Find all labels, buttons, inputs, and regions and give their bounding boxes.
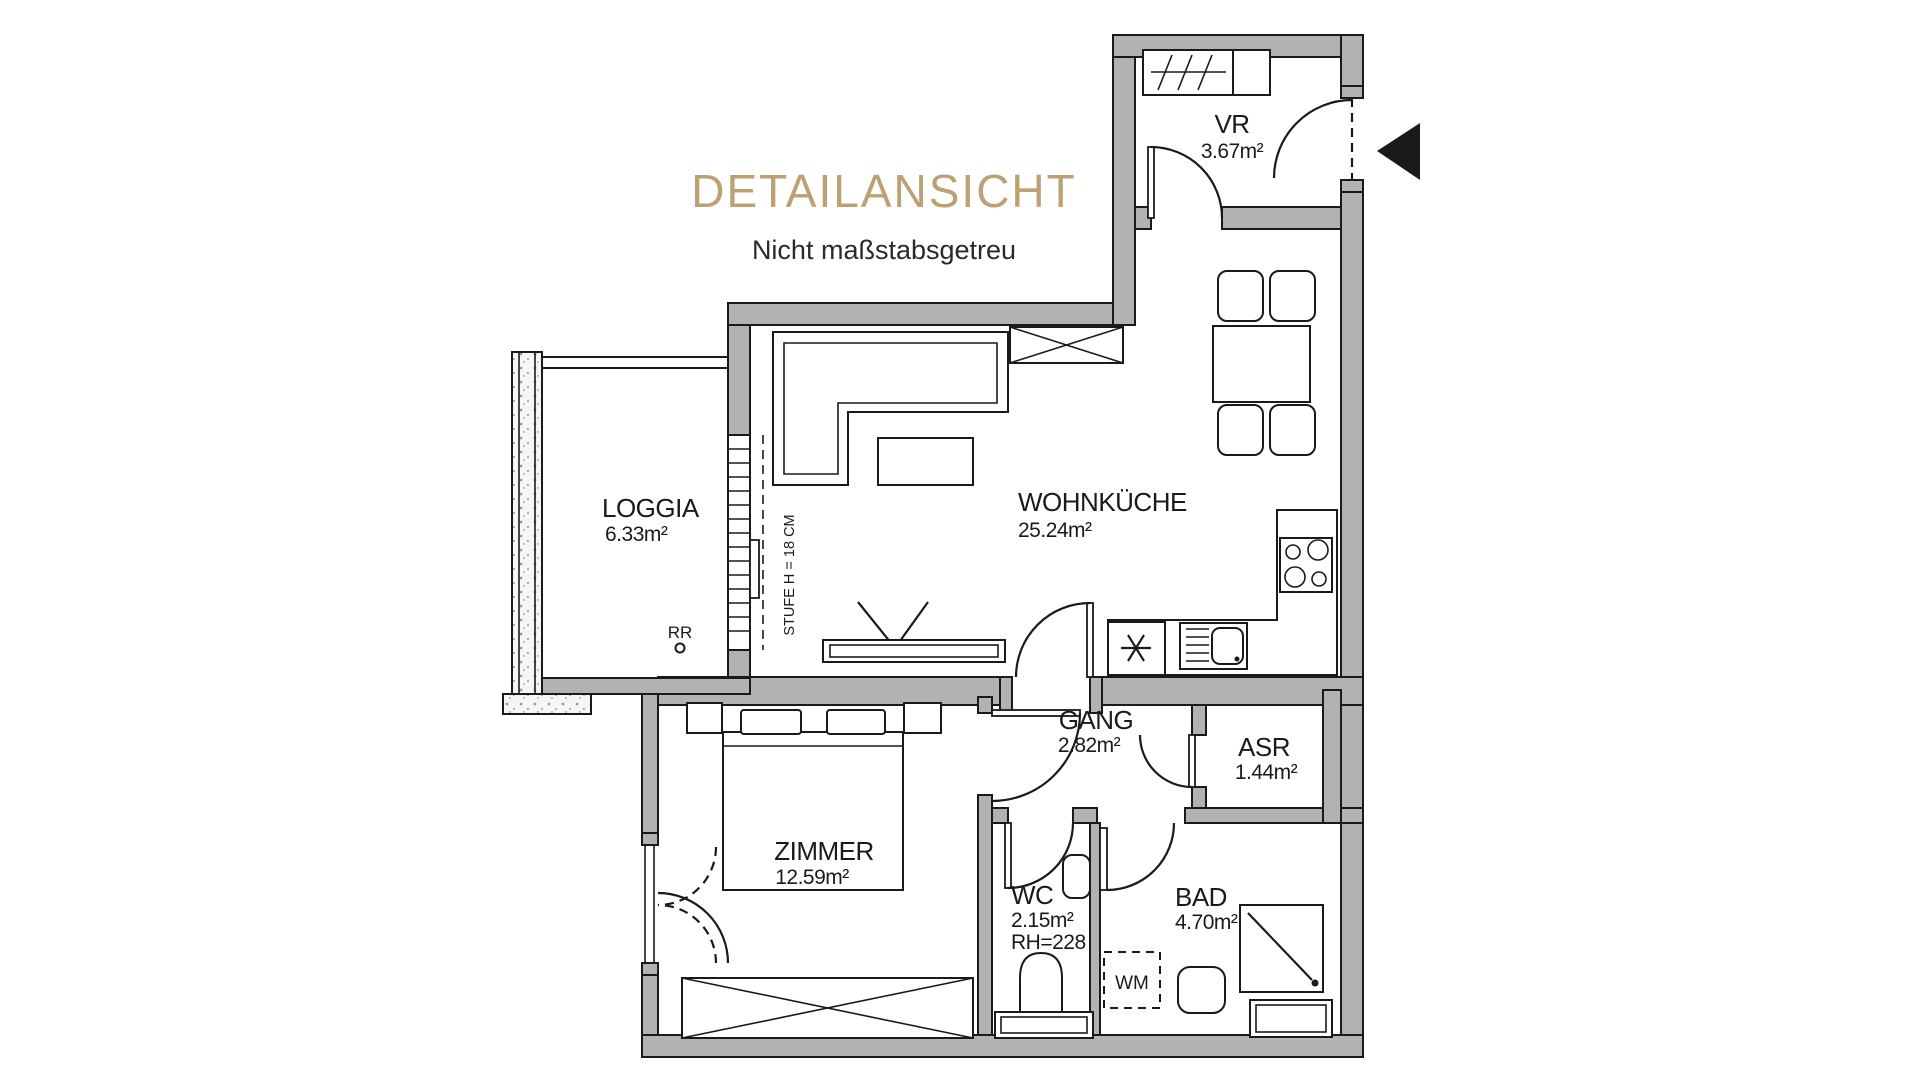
room-label-loggia: LOGGIA: [602, 493, 700, 523]
pillow: [741, 710, 801, 734]
room-area-wohnkueche: 25.24m²: [1018, 519, 1092, 542]
wall-loggia-left-concrete: [512, 352, 542, 694]
door-post: [1000, 677, 1012, 713]
kitchen-door-arc: [1016, 603, 1090, 677]
room-area-wc: 2.15m²: [1011, 909, 1074, 932]
room-label-wohnkueche: WOHNKÜCHE: [1018, 487, 1187, 517]
room-label-vr: VR: [1214, 109, 1249, 139]
dining-chair: [1218, 271, 1263, 321]
wall-vr-bottom-b: [1222, 207, 1341, 229]
asr-door-leaf: [1189, 735, 1195, 787]
wall-wc-bad: [1090, 823, 1100, 1035]
wall-asr-right-strip: [1323, 690, 1341, 823]
washing-machine-label: WM: [1115, 973, 1149, 994]
dining-chair: [1270, 271, 1315, 321]
dining-chair: [1270, 405, 1315, 455]
room-label-zimmer: ZIMMER: [774, 836, 874, 866]
zimmer-window: [640, 833, 728, 975]
shower: [1240, 905, 1323, 992]
floor-plan-drawing: DETAILANSICHT Nicht maßstabsgetreu: [0, 0, 1920, 1080]
living-furniture: [773, 332, 1008, 662]
wall-wc-bad-post: [1073, 808, 1097, 823]
wall-gang-stub: [992, 808, 1008, 823]
wall-asr-left-lower: [1192, 787, 1206, 808]
sink-drain: [1235, 657, 1240, 662]
kitchen-door-leaf: [1087, 603, 1093, 677]
coffee-table: [878, 438, 973, 485]
window-opening: [640, 845, 660, 963]
door-post: [642, 963, 658, 975]
room-label-bad: BAD: [1175, 882, 1227, 912]
shower-drain: [1312, 980, 1319, 987]
wall-loggia-stub-concrete: [503, 694, 591, 714]
shaft-box: [1010, 327, 1123, 363]
nightstand: [904, 703, 941, 733]
room-area-asr: 1.44m²: [1235, 761, 1298, 784]
entrance-opening: [1339, 98, 1365, 180]
door-post: [1341, 180, 1363, 192]
rain-pipe-icon: [676, 644, 685, 653]
rain-pipe-label: RR: [668, 623, 693, 642]
loggia-railing: [542, 357, 728, 368]
door-post: [1341, 86, 1363, 98]
rain-pipe-marker: RR: [668, 623, 693, 653]
bad-door-arc: [1107, 823, 1174, 890]
wardrobe: [682, 978, 973, 1038]
loggia-door-leaf: [750, 540, 759, 598]
wc-washbasin: [1063, 855, 1090, 898]
wall-zimmer-stub: [978, 697, 992, 713]
floor-plan-page: DETAILANSICHT Nicht maßstabsgetreu: [0, 0, 1920, 1080]
room-area-zimmer: 12.59m²: [775, 866, 849, 889]
wall-kitchen-top: [728, 303, 1113, 325]
vr-door-leaf: [1148, 147, 1154, 218]
wall-asr-left-upper: [1192, 705, 1206, 735]
step-note: STUFE H = 18 CM: [782, 514, 798, 635]
room-label-gang: GANG: [1059, 705, 1134, 735]
wall-vr-left: [1113, 57, 1135, 325]
room-label-wc: WC: [1011, 880, 1053, 910]
dining-chair: [1218, 405, 1263, 455]
room-label-asr: ASR: [1238, 732, 1290, 762]
room-area-gang: 2.82m²: [1058, 734, 1121, 757]
entrance-arrow-icon: [1377, 123, 1420, 180]
asr-door-arc: [1140, 735, 1192, 787]
vr-wardrobe: [1143, 50, 1270, 95]
room-area-bad: 4.70m²: [1175, 911, 1238, 934]
nightstand: [687, 703, 722, 733]
bad-door-leaf: [1100, 828, 1107, 890]
door-post: [642, 833, 658, 845]
dining-set: [1213, 271, 1315, 455]
wc-door-leaf: [1005, 823, 1011, 888]
wc-wall-niche: [995, 1012, 1093, 1038]
bad-washbasin: [1178, 967, 1225, 1013]
wall-loggia-bottom: [512, 678, 750, 694]
window-swing-arc: [658, 847, 716, 905]
wall-kitchen-left-upper: [728, 325, 750, 435]
room-area-vr: 3.67m²: [1201, 140, 1264, 163]
room-area-loggia: 6.33m²: [605, 523, 668, 546]
entrance: [1274, 86, 1420, 192]
pillow: [827, 710, 885, 734]
wall-zimmer-wc: [978, 795, 992, 1035]
page-subtitle: Nicht maßstabsgetreu: [752, 235, 1016, 265]
dining-table: [1213, 326, 1310, 402]
kitchen: [1108, 510, 1337, 675]
tv-board: [823, 640, 1005, 662]
page-title: DETAILANSICHT: [691, 165, 1077, 217]
loggia-window-band: [728, 435, 763, 650]
room-height-wc: RH=228: [1011, 931, 1086, 954]
toilet: [1020, 953, 1062, 1012]
